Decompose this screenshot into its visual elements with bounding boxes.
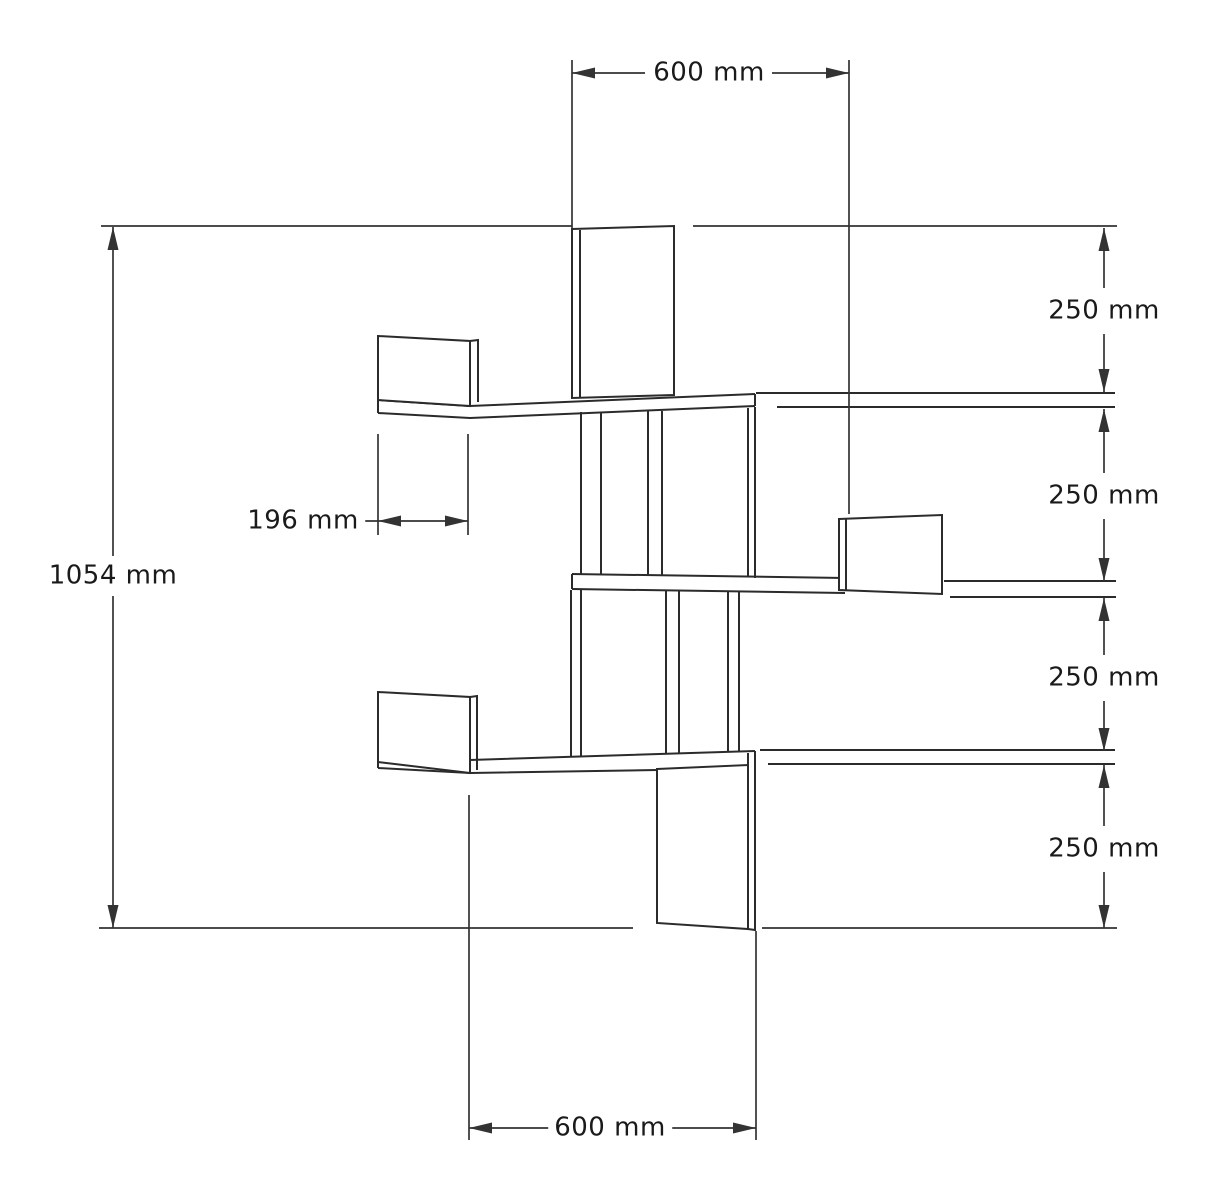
arrowhead-height-bottom [108, 905, 119, 928]
panel-top-back [572, 226, 674, 398]
shelf-bottom-bottom-edge [378, 768, 657, 773]
panel-middle-right-side [839, 515, 942, 594]
arrowhead-gap1-down [1099, 369, 1110, 392]
dim-label-gap-4: 250 mm [1042, 834, 1166, 865]
panel-bottom-back [657, 765, 748, 929]
arrowhead-top-left [572, 68, 595, 79]
arrowhead-gap2-down [1099, 558, 1110, 581]
arrowhead-height-top [108, 227, 119, 250]
shelf-middle-bottom-edge [572, 589, 845, 593]
arrowhead-gap2-up [1099, 409, 1110, 432]
panel-bottom-left-side [378, 692, 470, 773]
dim-label-bottom-width: 600 mm [548, 1113, 672, 1144]
arrowhead-gap1-up [1099, 228, 1110, 251]
dim-label-gap-3: 250 mm [1042, 663, 1166, 694]
arrowhead-top-right [826, 68, 849, 79]
dim-label-gap-1: 250 mm [1042, 296, 1166, 327]
dim-label-panel-width: 196 mm [241, 506, 365, 537]
technical-drawing-page: 600 mm 1054 mm 196 mm 250 mm 250 mm 250 … [0, 0, 1211, 1200]
arrowhead-196-left [378, 516, 401, 527]
shelf-middle-top-edge [572, 574, 845, 578]
shelf-top-bottom-edge [378, 406, 755, 418]
arrowhead-bottom-right [733, 1123, 756, 1134]
arrowhead-gap4-up [1099, 765, 1110, 788]
arrowhead-gap3-down [1099, 728, 1110, 751]
arrowhead-gap4-down [1099, 905, 1110, 928]
dim-label-overall-height: 1054 mm [43, 561, 184, 592]
corner-shelf-drawing [0, 0, 1211, 1200]
dimension-lines-group [99, 60, 1117, 1140]
dim-label-gap-2: 250 mm [1042, 481, 1166, 512]
panel-top-left-side-thickness-edge [470, 340, 478, 402]
dim-label-top-width: 600 mm [647, 58, 771, 89]
panel-bottom-back-bottom-step [748, 929, 755, 930]
arrowhead-bottom-left [469, 1123, 492, 1134]
arrowhead-196-right [445, 516, 468, 527]
arrowhead-gap3-up [1099, 598, 1110, 621]
panel-top-left-side [378, 336, 470, 406]
panels-group [378, 226, 942, 929]
